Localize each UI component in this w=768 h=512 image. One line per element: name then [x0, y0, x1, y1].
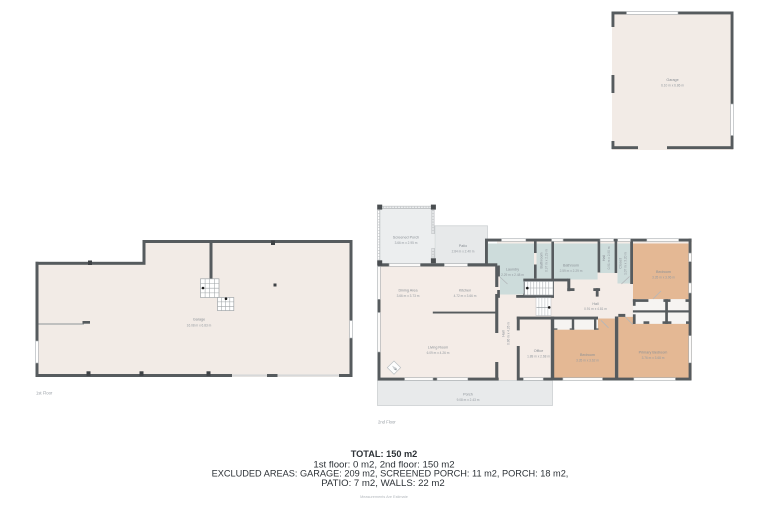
svg-text:Primary Bedroom: Primary Bedroom	[639, 351, 668, 355]
svg-text:2.84 m x 2.40 m: 2.84 m x 2.40 m	[452, 250, 475, 254]
svg-text:3.76 m x 3.68 m: 3.76 m x 3.68 m	[642, 356, 665, 360]
svg-text:Closet: Closet	[619, 258, 623, 268]
svg-text:2.29 m x 2.48 m: 2.29 m x 2.48 m	[501, 273, 524, 277]
svg-text:6.09 m x 4.26 m: 6.09 m x 4.26 m	[427, 351, 450, 355]
svg-text:Hall: Hall	[592, 302, 599, 306]
svg-text:Bedroom: Bedroom	[580, 353, 595, 357]
svg-text:Bathroom: Bathroom	[563, 264, 579, 268]
svg-text:1.07 m x 3.20 m: 1.07 m x 3.20 m	[624, 252, 628, 275]
svg-text:0.91 m x 4.81 m: 0.91 m x 4.81 m	[584, 307, 607, 311]
svg-text:Laundry: Laundry	[506, 268, 519, 272]
svg-text:Dining Area: Dining Area	[398, 289, 418, 293]
svg-text:0.86 m x 4.26 m: 0.86 m x 4.26 m	[507, 322, 511, 345]
svg-text:1st Floor: 1st Floor	[36, 391, 53, 396]
svg-text:6.10 m x 6.86 m: 6.10 m x 6.86 m	[661, 84, 684, 88]
svg-text:Office: Office	[534, 349, 544, 353]
svg-text:Patio: Patio	[459, 244, 467, 248]
svg-text:PATIO: 7 m2, WALLS: 22 m2: PATIO: 7 m2, WALLS: 22 m2	[321, 478, 445, 489]
svg-text:16.08 m x 6.83 m: 16.08 m x 6.83 m	[187, 324, 212, 328]
svg-text:Garage: Garage	[666, 78, 678, 82]
svg-text:EXCLUDED AREAS: GARAGE: 209 m2: EXCLUDED AREAS: GARAGE: 209 m2, SCREENED…	[212, 468, 569, 478]
svg-text:Kitchen: Kitchen	[459, 289, 471, 293]
svg-text:3.66 m x 2.95 m: 3.66 m x 2.95 m	[395, 241, 418, 245]
svg-text:9.08 m x 2.43 m: 9.08 m x 2.43 m	[457, 398, 480, 402]
svg-text:TOTAL: 150 m2: TOTAL: 150 m2	[351, 449, 418, 459]
svg-text:Garage: Garage	[193, 318, 205, 322]
svg-text:2nd Floor: 2nd Floor	[378, 420, 396, 425]
svg-text:0.97 m x 2.29 m: 0.97 m x 2.29 m	[545, 249, 549, 272]
svg-text:3.35 m x 3.96 m: 3.35 m x 3.96 m	[652, 276, 675, 280]
svg-text:Bathroom: Bathroom	[540, 253, 544, 269]
svg-text:Bedroom: Bedroom	[656, 270, 671, 274]
svg-text:3.66 m x 3.73 m: 3.66 m x 3.73 m	[397, 294, 420, 298]
svg-text:4.72 m x 3.66 m: 4.72 m x 3.66 m	[454, 294, 477, 298]
svg-text:Hall: Hall	[502, 330, 506, 337]
svg-text:Screened Porch: Screened Porch	[393, 235, 419, 239]
svg-text:Hall: Hall	[602, 255, 606, 262]
svg-text:3.35 m x 3.62 m: 3.35 m x 3.62 m	[576, 359, 599, 363]
svg-text:2.59 m x 2.29 m: 2.59 m x 2.29 m	[560, 269, 583, 273]
svg-text:Porch: Porch	[463, 393, 473, 397]
svg-text:0.91 m x 2.90 m: 0.91 m x 2.90 m	[607, 246, 611, 269]
svg-text:Living Room: Living Room	[428, 346, 449, 350]
svg-text:Measurements Are Estimate: Measurements Are Estimate	[360, 495, 408, 499]
svg-text:1.88 m x 2.68 m: 1.88 m x 2.68 m	[527, 355, 550, 359]
